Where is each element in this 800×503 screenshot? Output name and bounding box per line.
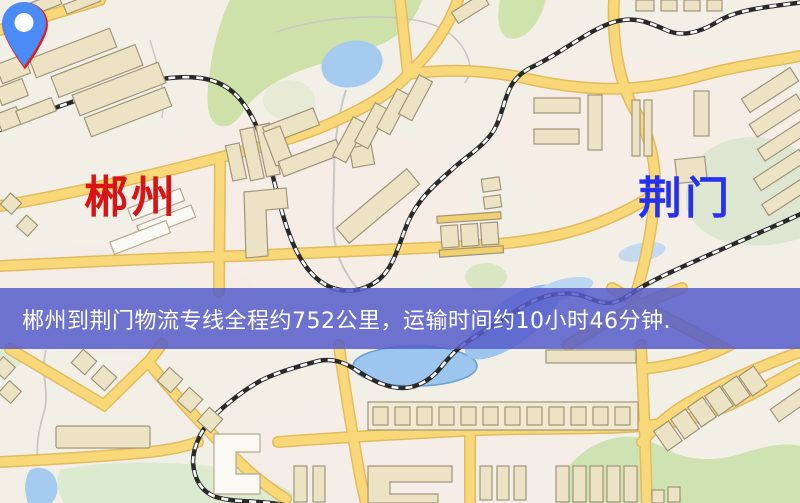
destination-marker-icon	[0, 0, 48, 67]
origin-city-label: 郴州	[84, 176, 178, 220]
map-background	[0, 0, 800, 503]
info-banner-text: 郴州到荆门物流专线全程约752公里，运输时间约10小时46分钟.	[0, 303, 671, 335]
info-banner: 郴州到荆门物流专线全程约752公里，运输时间约10小时46分钟.	[0, 288, 800, 349]
destination-city-label: 荆门	[638, 177, 732, 221]
map-canvas: 郴州 荆门 郴州到荆门物流专线全程约752公里，运输时间约10小时46分钟.	[0, 0, 800, 503]
